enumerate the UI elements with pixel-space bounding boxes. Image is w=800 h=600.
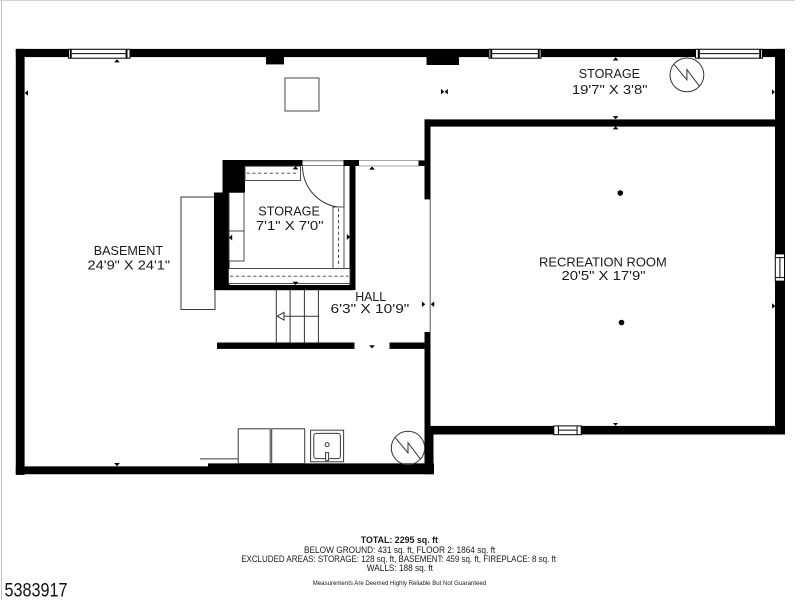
svg-text:20'5" X 17'9": 20'5" X 17'9" bbox=[562, 268, 646, 283]
svg-text:7'1" X 7'0": 7'1" X 7'0" bbox=[256, 218, 324, 233]
svg-text:5383917: 5383917 bbox=[5, 580, 68, 600]
svg-text:24'9" X 24'1": 24'9" X 24'1" bbox=[88, 257, 171, 272]
svg-text:WALLS: 188 sq. ft: WALLS: 188 sq. ft bbox=[367, 562, 433, 573]
svg-text:STORAGE: STORAGE bbox=[579, 66, 640, 81]
svg-text:BASEMENT: BASEMENT bbox=[94, 243, 163, 258]
svg-text:6'3" X 10'9": 6'3" X 10'9" bbox=[331, 301, 410, 316]
svg-text:19'7" X 3'8": 19'7" X 3'8" bbox=[572, 82, 648, 97]
svg-text:Measurements Are Deemed Highly: Measurements Are Deemed Highly Reliable … bbox=[313, 580, 487, 587]
svg-text:RECREATION ROOM: RECREATION ROOM bbox=[539, 254, 667, 269]
svg-text:STORAGE: STORAGE bbox=[258, 203, 320, 218]
